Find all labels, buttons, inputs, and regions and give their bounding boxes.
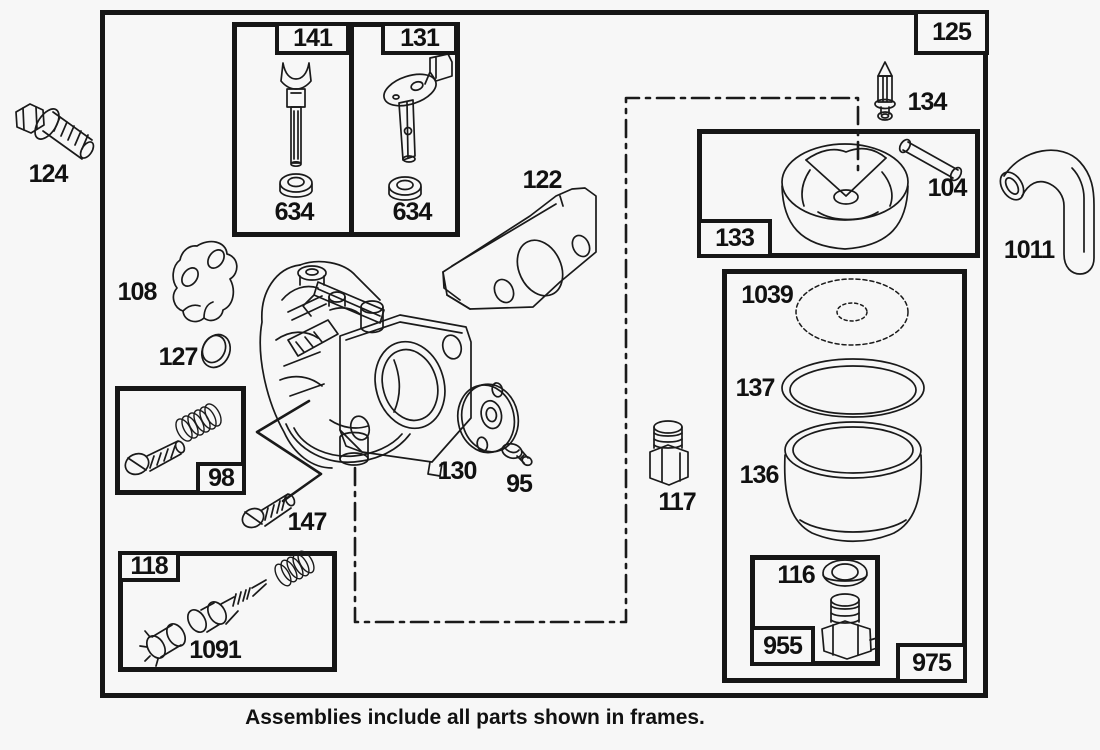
- part-label-104: 104: [917, 174, 977, 203]
- frame-label-975: 975: [896, 643, 967, 683]
- part-label-122: 122: [512, 166, 572, 195]
- frame-label-98: 98: [196, 462, 246, 495]
- part-label-130: 130: [427, 457, 487, 486]
- needle-134-drawing: [875, 62, 895, 120]
- part-label-117: 117: [647, 488, 707, 517]
- fitting-117-drawing: [650, 421, 688, 485]
- throttle-shaft-141-drawing: [280, 63, 312, 197]
- washer-116-drawing: [823, 560, 867, 586]
- parts-diagram-page: 125 141 131 133 98 118 955 975 124 634 6…: [0, 0, 1100, 750]
- part-label-124: 124: [18, 160, 78, 189]
- part-label-137: 137: [725, 374, 785, 403]
- bolt-124-drawing: [16, 104, 96, 160]
- gasket-1039-drawing: [796, 279, 908, 345]
- part-label-634-throttle: 634: [264, 198, 324, 227]
- frame-label-141-text: 141: [293, 24, 332, 53]
- diaphragm-130-drawing: [452, 379, 525, 458]
- float-133-drawing: [782, 144, 908, 249]
- part-label-1039: 1039: [731, 281, 803, 310]
- bowl-bolt-955-drawing: [822, 594, 877, 659]
- frame-label-98-text: 98: [208, 464, 234, 493]
- frame-label-125: 125: [914, 10, 989, 55]
- frame-label-141: 141: [275, 22, 350, 55]
- choke-shaft-131-drawing: [380, 54, 452, 200]
- oring-137-drawing: [782, 359, 924, 417]
- part-label-1011: 1011: [993, 236, 1065, 265]
- screw-95-drawing: [501, 442, 534, 467]
- part-label-634-choke: 634: [382, 198, 442, 227]
- part-label-1091: 1091: [179, 636, 251, 665]
- plate-108-drawing: [173, 242, 237, 322]
- frame-label-125-text: 125: [932, 18, 971, 47]
- part-label-134: 134: [897, 88, 957, 117]
- part-label-95: 95: [489, 470, 549, 499]
- carburetor-body-drawing: [260, 262, 471, 476]
- bowl-136-drawing: [785, 422, 922, 541]
- part-label-116: 116: [766, 561, 826, 590]
- frame-label-133-text: 133: [715, 224, 754, 253]
- frame-label-118-text: 118: [130, 552, 167, 581]
- part-label-127: 127: [148, 343, 208, 372]
- frame-label-131-text: 131: [400, 24, 439, 53]
- frame-label-955-text: 955: [763, 632, 802, 661]
- frame-label-118: 118: [118, 551, 180, 582]
- frame-label-131: 131: [381, 22, 458, 55]
- diagram-caption: Assemblies include all parts shown in fr…: [0, 706, 950, 730]
- part-label-108: 108: [107, 278, 167, 307]
- leader-147: [257, 401, 321, 501]
- spacer-122-drawing: [443, 188, 596, 309]
- frame-label-955: 955: [750, 626, 815, 666]
- part-label-136: 136: [729, 461, 789, 490]
- frame-label-133: 133: [697, 219, 772, 258]
- frame-label-975-text: 975: [912, 649, 951, 678]
- part-label-147: 147: [277, 508, 337, 537]
